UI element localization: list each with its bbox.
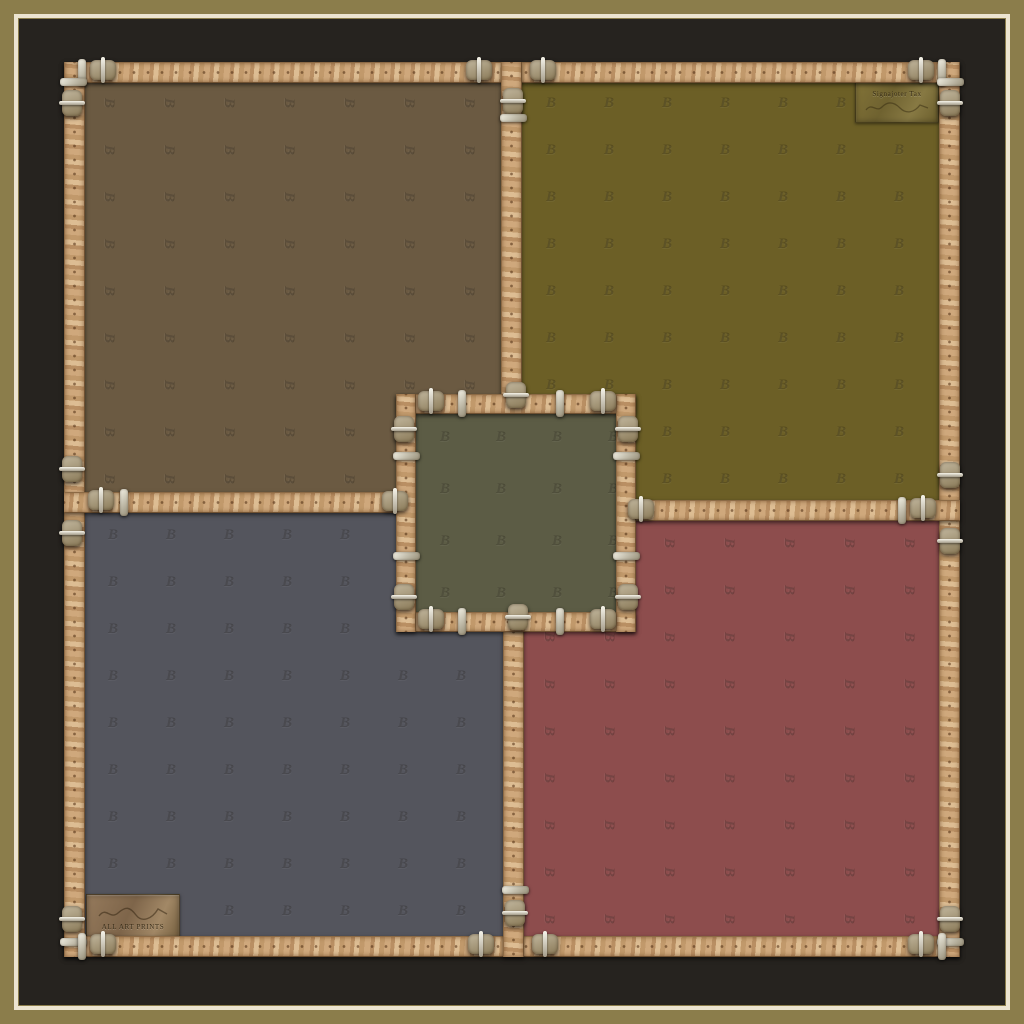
scarf-artwork: BBBBBBBBBBBBBBBBBBBBBBBBBBBBBBBBBBBBBBBB… [0,0,1024,1024]
monogram-glyph: B [900,863,918,881]
monogram-glyph: B [452,761,470,779]
monogram-glyph: B [658,329,676,347]
monogram-glyph: B [600,282,618,300]
monogram-glyph: B [600,235,618,253]
monogram-glyph: B [460,188,478,206]
monogram-glyph: B [890,282,908,300]
monogram-glyph: B [542,235,560,253]
monogram-glyph: B [340,376,358,394]
patch-text: ALL ART PRINTS [102,923,164,931]
monogram-glyph: B [278,714,296,732]
monogram-glyph: B [340,141,358,159]
monogram-glyph: B [220,329,238,347]
monogram-glyph: B [540,816,558,834]
monogram-glyph: B [780,863,798,881]
monogram-glyph: B [542,141,560,159]
monogram-glyph: B [460,329,478,347]
belt-buckle [88,490,114,510]
belt-keeper [60,78,87,86]
belt-buckle [62,456,82,482]
belt-buckle [940,462,960,488]
monogram-glyph: B [720,581,738,599]
monogram-glyph: B [658,94,676,112]
monogram-glyph: B [780,675,798,693]
monogram-glyph: B [660,816,678,834]
monogram-glyph: B [162,620,180,638]
monogram-glyph: B [716,329,734,347]
monogram-glyph: B [160,94,178,112]
monogram-glyph: B [840,675,858,693]
monogram-glyph: B [720,863,738,881]
monogram-glyph: B [336,855,354,873]
monogram-glyph: B [716,188,734,206]
monogram-glyph: B [542,94,560,112]
monogram-glyph: B [100,235,118,253]
monogram-glyph: B [548,480,566,498]
belt-keeper [938,933,946,960]
monogram-glyph: B [394,902,412,920]
monogram-glyph: B [716,423,734,441]
belt-buckle [506,382,526,408]
monogram-glyph: B [660,675,678,693]
signature-scribble-icon [864,99,930,115]
belt-keeper [613,452,640,460]
monogram-glyph: B [832,423,850,441]
monogram-glyph: B [160,329,178,347]
monogram-glyph: B [336,667,354,685]
belt-buckle [508,604,528,630]
monogram-glyph: B [900,816,918,834]
monogram-glyph: B [100,188,118,206]
monogram-glyph: B [540,769,558,787]
monogram-glyph: B [400,188,418,206]
monogram-glyph: B [832,470,850,488]
belt-buckle [940,90,960,116]
monogram-glyph: B [720,910,738,928]
monogram-glyph: B [716,235,734,253]
monogram-glyph: B [162,855,180,873]
monogram-glyph: B [540,722,558,740]
monogram-glyph: B [840,769,858,787]
monogram-glyph: B [600,863,618,881]
monogram-glyph: B [400,141,418,159]
belt-keeper [120,489,128,516]
monogram-glyph: B [900,628,918,646]
belt-buckle [468,934,494,954]
monogram-glyph: B [340,235,358,253]
monogram-glyph: B [340,423,358,441]
monogram-glyph: B [452,855,470,873]
monogram-glyph: B [900,581,918,599]
monogram-glyph: B [840,910,858,928]
monogram-glyph: B [100,94,118,112]
belt-buckle [940,528,960,554]
monogram-glyph: B [100,141,118,159]
belt-buckle [628,499,654,519]
belt-buckle [90,934,116,954]
monogram-glyph: B [840,863,858,881]
monogram-glyph: B [780,581,798,599]
monogram-glyph: B [832,94,850,112]
monogram-glyph: B [716,376,734,394]
monogram-glyph: B [336,573,354,591]
monogram-glyph: B [280,141,298,159]
monogram-glyph: B [780,816,798,834]
belt-buckle [532,934,558,954]
monogram-glyph: B [600,722,618,740]
monogram-glyph: B [104,714,122,732]
monogram-glyph: B [658,376,676,394]
monogram-glyph: B [774,423,792,441]
monogram-glyph: B [548,532,566,550]
monogram-glyph: B [162,526,180,544]
monogram-glyph: B [220,902,238,920]
monogram-glyph: B [104,573,122,591]
monogram-glyph: B [220,282,238,300]
monogram-glyph: B [600,675,618,693]
monogram-glyph: B [394,667,412,685]
monogram-glyph: B [840,581,858,599]
belt-buckle [940,906,960,932]
monogram-glyph: B [280,329,298,347]
monogram-glyph: B [780,910,798,928]
monogram-glyph: B [542,188,560,206]
monogram-glyph: B [492,428,510,446]
monogram-glyph: B [658,141,676,159]
monogram-glyph: B [832,376,850,394]
monogram-glyph: B [600,188,618,206]
monogram-glyph: B [220,470,238,488]
monogram-glyph: B [160,282,178,300]
monogram-glyph: B [716,94,734,112]
monogram-glyph: B [540,675,558,693]
belt-divider-horizontal-right [620,500,960,521]
belt-buckle [910,498,936,518]
monogram-glyph: B [660,769,678,787]
monogram-glyph: B [890,376,908,394]
monogram-glyph: B [394,761,412,779]
monogram-glyph: B [492,480,510,498]
belt-keeper [500,114,527,122]
monogram-glyph: B [280,282,298,300]
belt-keeper [556,608,564,635]
monogram-glyph: B [720,722,738,740]
monogram-glyph: B [840,816,858,834]
belt-buckle [382,491,408,511]
belt-buckle [908,934,934,954]
monogram-glyph: B [220,423,238,441]
belt-buckle [618,416,638,442]
monogram-glyph: B [220,235,238,253]
monogram-glyph: B [600,329,618,347]
belt-keeper [613,552,640,560]
monogram-glyph: B [100,376,118,394]
monogram-glyph: B [280,376,298,394]
monogram-glyph: B [340,329,358,347]
monogram-glyph: B [658,470,676,488]
monogram-glyph: B [278,526,296,544]
monogram-glyph: B [720,675,738,693]
belt-buckle [505,900,525,926]
monogram-glyph: B [720,534,738,552]
monogram-glyph: B [900,675,918,693]
monogram-glyph: B [600,769,618,787]
monogram-glyph: B [280,235,298,253]
monogram-glyph: B [840,628,858,646]
signature-scribble-icon [96,904,170,922]
monogram-glyph: B [780,534,798,552]
monogram-glyph: B [600,94,618,112]
monogram-glyph: B [336,620,354,638]
monogram-glyph: B [220,855,238,873]
monogram-glyph: B [900,722,918,740]
monogram-glyph: B [220,94,238,112]
monogram-glyph: B [452,667,470,685]
belt-buckle [530,60,556,80]
monogram-glyph: B [890,188,908,206]
belt-keeper [502,886,529,894]
monogram-glyph: B [716,470,734,488]
monogram-glyph: B [600,816,618,834]
monogram-glyph: B [460,94,478,112]
monogram-glyph: B [890,329,908,347]
monogram-glyph: B [548,428,566,446]
monogram-glyph: B [278,902,296,920]
monogram-glyph: B [452,714,470,732]
monogram-glyph: B [600,141,618,159]
monogram-glyph: B [780,628,798,646]
monogram-glyph: B [436,584,454,602]
monogram-glyph: B [340,470,358,488]
monogram-glyph: B [660,722,678,740]
monogram-glyph: B [394,714,412,732]
monogram-glyph: B [492,532,510,550]
monogram-glyph: B [890,470,908,488]
monogram-glyph: B [160,235,178,253]
monogram-glyph: B [340,282,358,300]
monogram-glyph: B [774,329,792,347]
belt-keeper [898,497,906,524]
monogram-glyph: B [104,855,122,873]
monogram-glyph: B [832,141,850,159]
monogram-glyph: B [658,282,676,300]
monogram-glyph: B [436,428,454,446]
monogram-glyph: B [160,376,178,394]
monogram-glyph: B [280,94,298,112]
monogram-glyph: B [160,141,178,159]
belt-buckle [394,416,414,442]
monogram-glyph: B [900,534,918,552]
monogram-glyph: B [890,141,908,159]
monogram-glyph: B [780,722,798,740]
monogram-glyph: B [774,235,792,253]
monogram-glyph: B [220,573,238,591]
monogram-glyph: B [832,282,850,300]
belt-keeper [937,78,964,86]
monogram-glyph: B [774,188,792,206]
belt-buckle [62,520,82,546]
signature-patch-top-right: Signajoter Tax [855,81,939,123]
belt-buckle [62,906,82,932]
monogram-glyph: B [220,714,238,732]
monogram-glyph: B [540,910,558,928]
monogram-glyph: B [100,470,118,488]
monogram-glyph: B [160,470,178,488]
belt-buckle [590,609,616,629]
monogram-glyph: B [162,667,180,685]
monogram-glyph: B [336,526,354,544]
belt-buckle [418,391,444,411]
monogram-glyph: B [716,141,734,159]
monogram-glyph: B [220,526,238,544]
monogram-glyph: B [452,808,470,826]
monogram-glyph: B [220,141,238,159]
monogram-glyph: B [720,769,738,787]
belt-keeper [393,452,420,460]
belt-buckle [394,584,414,610]
monogram-glyph: B [436,480,454,498]
belt-keeper [458,608,466,635]
monogram-glyph: B [840,722,858,740]
monogram-glyph: B [278,573,296,591]
monogram-glyph: B [104,526,122,544]
monogram-glyph: B [278,808,296,826]
monogram-glyph: B [394,855,412,873]
monogram-glyph: B [162,761,180,779]
monogram-glyph: B [660,910,678,928]
monogram-glyph: B [400,376,418,394]
monogram-glyph: B [540,863,558,881]
monogram-glyph: B [336,808,354,826]
belt-divider-horizontal-left [64,492,410,513]
monogram-glyph: B [220,761,238,779]
monogram-glyph: B [780,769,798,787]
monogram-glyph: B [104,667,122,685]
monogram-glyph: B [460,282,478,300]
monogram-glyph: B [278,620,296,638]
monogram-glyph: B [774,376,792,394]
belt-keeper [78,933,86,960]
monogram-glyph: B [548,584,566,602]
monogram-glyph: B [774,94,792,112]
monogram-glyph: B [400,329,418,347]
monogram-glyph: B [278,761,296,779]
monogram-glyph: B [658,423,676,441]
monogram-glyph: B [104,761,122,779]
belt-keeper [393,552,420,560]
center-square: BBBBBBBBBBBBBBBB [404,402,628,620]
monogram-glyph: B [660,581,678,599]
monogram-glyph: B [340,188,358,206]
monogram-glyph: B [100,423,118,441]
monogram-glyph: B [280,470,298,488]
monogram-glyph: B [774,141,792,159]
monogram-glyph: B [400,235,418,253]
monogram-glyph: B [220,620,238,638]
monogram-glyph: B [658,188,676,206]
monogram-glyph: B [160,188,178,206]
monogram-glyph: B [340,94,358,112]
belt-buckle [466,60,492,80]
belt-buckle [908,60,934,80]
monogram-glyph: B [832,329,850,347]
monogram-glyph: B [336,761,354,779]
monogram-glyph: B [660,628,678,646]
belt-buckle [90,60,116,80]
belt-buckle [618,584,638,610]
monogram-glyph: B [774,470,792,488]
monogram-glyph: B [890,423,908,441]
monogram-glyph: B [658,235,676,253]
monogram-glyph: B [900,769,918,787]
monogram-glyph: B [394,808,412,826]
monogram-glyph: B [104,808,122,826]
monogram-glyph: B [890,235,908,253]
monogram-glyph: B [220,188,238,206]
belt-keeper [458,390,466,417]
monogram-glyph: B [832,188,850,206]
monogram-glyph: B [162,808,180,826]
monogram-glyph: B [460,141,478,159]
belt-keeper [556,390,564,417]
monogram-glyph: B [162,573,180,591]
monogram-glyph: B [660,863,678,881]
monogram-glyph: B [840,534,858,552]
monogram-glyph: B [104,620,122,638]
patch-text: Signajoter Tax [872,90,921,98]
monogram-glyph: B [436,532,454,550]
monogram-glyph: B [716,282,734,300]
monogram-glyph: B [400,94,418,112]
belt-buckle [418,609,444,629]
monogram-glyph: B [492,584,510,602]
monogram-glyph: B [162,714,180,732]
belt-buckle [62,90,82,116]
monogram-glyph: B [336,902,354,920]
monogram-glyph: B [336,714,354,732]
monogram-glyph: B [452,902,470,920]
monogram-glyph: B [720,816,738,834]
monogram-glyph: B [278,855,296,873]
monogram-glyph: B [220,376,238,394]
monogram-glyph: B [280,188,298,206]
monogram-glyph: B [542,329,560,347]
monogram-glyph: B [600,910,618,928]
monogram-glyph: B [220,667,238,685]
monogram-glyph: B [220,808,238,826]
monogram-glyph: B [100,329,118,347]
monogram-glyph: B [542,282,560,300]
monogram-glyph: B [100,282,118,300]
monogram-glyph: B [280,423,298,441]
monogram-glyph: B [400,282,418,300]
monogram-glyph: B [774,282,792,300]
monogram-glyph: B [900,910,918,928]
monogram-glyph: B [720,628,738,646]
belt-buckle [503,88,523,114]
monogram-glyph: B [660,534,678,552]
monogram-glyph: B [278,667,296,685]
monogram-glyph: B [460,235,478,253]
monogram-glyph: B [160,423,178,441]
belt-buckle [590,391,616,411]
monogram-glyph: B [832,235,850,253]
